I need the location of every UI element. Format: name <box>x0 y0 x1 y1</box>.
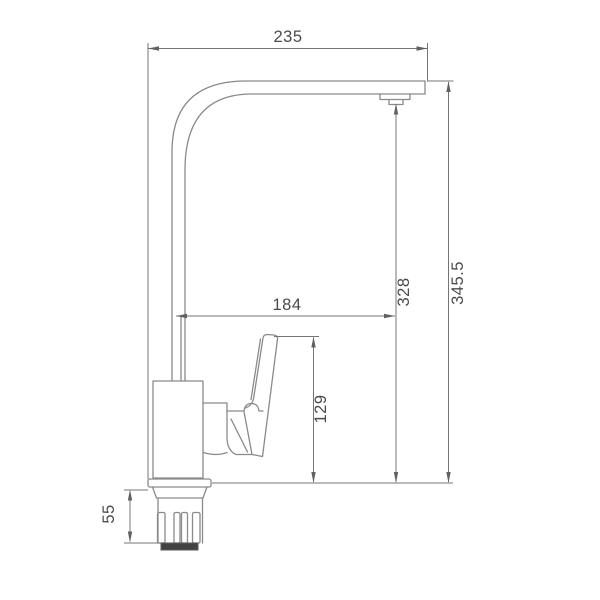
faucet-body <box>153 381 203 478</box>
body-underside-curve <box>204 453 228 455</box>
arrowhead-left <box>148 46 159 51</box>
arrowhead-right <box>417 46 428 51</box>
spout-inner-profile <box>185 94 425 381</box>
dimension-label-55: 55 <box>100 504 118 523</box>
dimension-label-328: 328 <box>395 277 413 306</box>
arrowhead-right <box>384 314 395 318</box>
dimension-overall-height: 345.5 <box>427 81 467 483</box>
handle-lever <box>246 335 278 457</box>
shank-tip-band <box>161 543 198 550</box>
shank-rib <box>174 513 180 544</box>
shank-ribs <box>158 513 201 544</box>
arrowhead-down <box>128 532 132 543</box>
arrowhead-down <box>311 472 315 483</box>
arrowhead-up <box>311 337 315 348</box>
handle-cone <box>227 411 252 455</box>
arrowhead-down <box>394 472 398 483</box>
dimension-label-345-5: 345.5 <box>449 261 467 305</box>
arrowhead-up <box>446 81 450 92</box>
shank-rib <box>193 513 201 544</box>
arrowhead-up <box>128 490 132 501</box>
dimension-spout-reach: 184 <box>176 296 395 318</box>
dimension-top-width: 235 <box>148 28 428 479</box>
deck-flange <box>148 479 211 487</box>
aerator-housing <box>380 94 410 100</box>
handle-lever-inner-line <box>251 339 261 400</box>
shank-rib <box>182 513 188 544</box>
dimension-outlet-height: 328 <box>394 104 413 484</box>
shank-collar <box>153 487 208 498</box>
arrowhead-down <box>446 472 450 483</box>
dimension-label-129: 129 <box>312 394 330 423</box>
dimension-label-235: 235 <box>273 28 302 46</box>
dimension-label-184: 184 <box>272 296 301 314</box>
dimension-shank-height: 55 <box>100 490 160 544</box>
dimension-annotations: 235 345.5 328 184 <box>100 28 467 543</box>
technical-drawing-canvas: 235 345.5 328 184 <box>0 0 600 600</box>
handle-cone-inner-line <box>231 419 248 452</box>
cartridge-step <box>203 403 244 411</box>
dimension-handle-height: 129 <box>274 337 330 484</box>
faucet-technical-drawing: 235 345.5 328 184 <box>0 0 600 600</box>
